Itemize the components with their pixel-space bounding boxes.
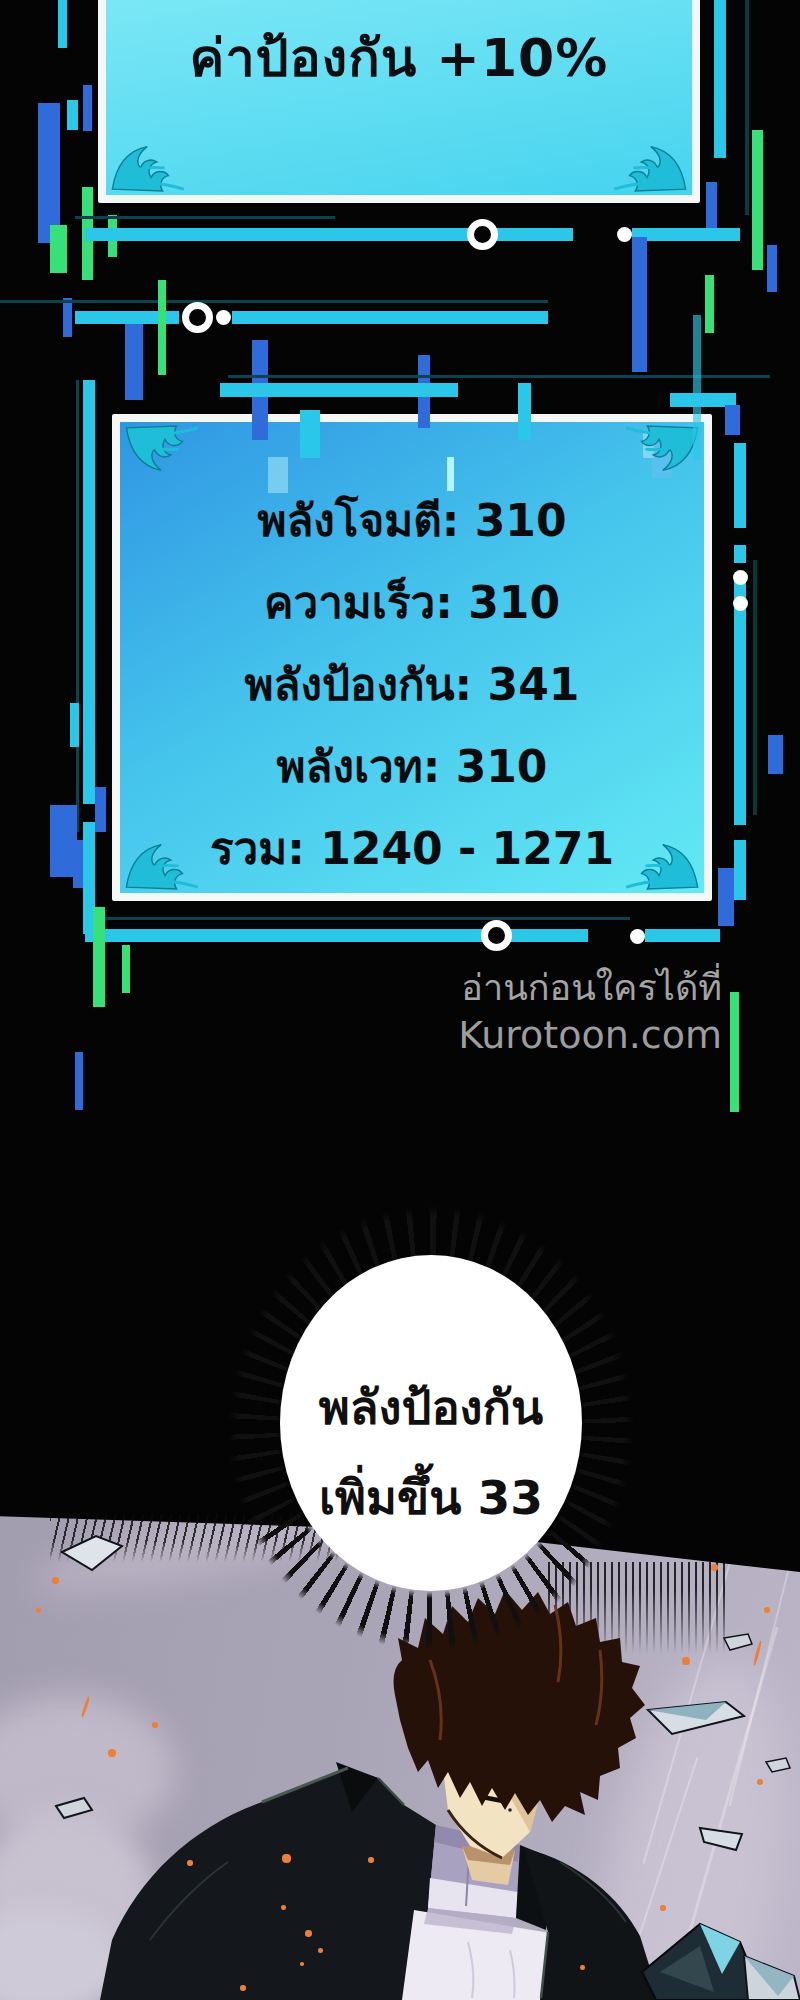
- watermark-line2: Kurotoon.com: [402, 1012, 722, 1058]
- deco-bar: [632, 228, 740, 241]
- deco-bar: [693, 315, 701, 460]
- spark: [187, 1860, 193, 1866]
- comic-page: ค่าป้องกัน +10% พลังโจมตี: 310 ความเร็ว:…: [0, 0, 800, 2000]
- spark: [660, 1905, 666, 1911]
- spark: [300, 1962, 304, 1966]
- deco-bar: [718, 868, 734, 926]
- corner-flourish-icon: [122, 833, 210, 891]
- deco-line: [753, 560, 757, 815]
- deco-bar: [734, 545, 746, 563]
- deco-bar: [63, 298, 72, 337]
- dot-node-icon: [733, 596, 748, 611]
- deco-bar: [730, 992, 739, 1112]
- stat-attack: พลังโจมตี: 310: [120, 480, 704, 562]
- deco-bar: [122, 945, 130, 993]
- deco-bar: [38, 103, 60, 243]
- ring-node-icon: [481, 920, 512, 951]
- dot-node-icon: [216, 310, 231, 325]
- status-window-buff: ค่าป้องกัน +10%: [98, 0, 700, 203]
- deco-bar: [125, 320, 143, 400]
- deco-bar: [67, 100, 78, 130]
- deco-bar: [95, 787, 106, 832]
- spark: [368, 1857, 374, 1863]
- deco-bar: [725, 405, 740, 435]
- deco-bar: [58, 0, 67, 48]
- deco-bar: [83, 85, 92, 131]
- deco-bar: [85, 228, 573, 241]
- deco-line: [100, 917, 630, 920]
- spark: [764, 1607, 770, 1613]
- deco-bar: [85, 929, 588, 942]
- watermark-line1: อ่านก่อนใครได้ที่: [402, 966, 722, 1010]
- deco-bar: [645, 929, 720, 942]
- corner-flourish-icon: [614, 833, 702, 891]
- bubble-line2: เพิ่มขึ้น 33: [319, 1453, 543, 1543]
- spark: [152, 1722, 158, 1728]
- ring-node-icon: [467, 219, 498, 250]
- ring-node-icon: [182, 302, 213, 333]
- corner-flourish-icon: [122, 424, 210, 482]
- spark: [240, 1985, 246, 1991]
- deco-bar: [767, 245, 777, 292]
- spark: [281, 1905, 286, 1910]
- deco-bar: [752, 130, 763, 270]
- deco-line: [0, 300, 548, 303]
- deco-bar: [73, 840, 83, 888]
- watermark: อ่านก่อนใครได้ที่ Kurotoon.com: [402, 966, 722, 1058]
- spark: [318, 1948, 323, 1953]
- stats-list: พลังโจมตี: 310 ความเร็ว: 310 พลังป้องกัน…: [120, 422, 704, 893]
- spark: [305, 1930, 312, 1937]
- dot-node-icon: [733, 570, 748, 585]
- spark: [108, 1749, 116, 1757]
- deco-bar: [705, 275, 714, 333]
- bubble-line1: พลังป้องกัน: [319, 1363, 543, 1453]
- deco-bar: [158, 280, 166, 375]
- deco-bar: [75, 1052, 83, 1110]
- spark: [580, 1965, 585, 1970]
- corner-flourish-icon: [614, 424, 702, 482]
- deco-bar: [734, 443, 746, 528]
- deco-bar: [220, 383, 458, 397]
- deco-bar: [734, 840, 746, 900]
- deco-bar: [768, 735, 783, 774]
- stat-speed: ความเร็ว: 310: [120, 562, 704, 644]
- deco-line: [745, 0, 749, 215]
- deco-bar: [632, 237, 647, 372]
- jacket-left: [100, 1768, 436, 2000]
- deco-bar: [83, 380, 95, 804]
- spark: [757, 1779, 763, 1785]
- spark: [711, 1564, 718, 1571]
- deco-line: [76, 380, 79, 832]
- corner-flourish-icon: [108, 135, 196, 193]
- corner-flourish-icon: [602, 135, 690, 193]
- speech-bubble: พลังป้องกัน เพิ่มขึ้น 33: [280, 1255, 582, 1591]
- deco-bar: [50, 225, 67, 273]
- spark: [282, 1854, 291, 1863]
- deco-bar: [70, 703, 79, 747]
- spark: [52, 1577, 59, 1584]
- deco-bar: [232, 311, 548, 324]
- deco-bar: [518, 383, 531, 440]
- dot-node-icon: [630, 929, 645, 944]
- deco-bar: [734, 575, 746, 825]
- deco-line: [75, 216, 335, 219]
- deco-line: [228, 375, 770, 378]
- stat-defense: พลังป้องกัน: 341: [120, 644, 704, 726]
- status-window-stats: พลังโจมตี: 310 ความเร็ว: 310 พลังป้องกัน…: [112, 414, 712, 901]
- spark: [682, 1657, 690, 1665]
- deco-bar: [300, 410, 320, 458]
- deco-bar: [93, 907, 105, 1007]
- dot-node-icon: [617, 227, 632, 242]
- deco-bar: [714, 0, 726, 158]
- stat-magic: พลังเวท: 310: [120, 726, 704, 808]
- buff-text: ค่าป้องกัน +10%: [106, 16, 692, 99]
- spark: [36, 1608, 41, 1613]
